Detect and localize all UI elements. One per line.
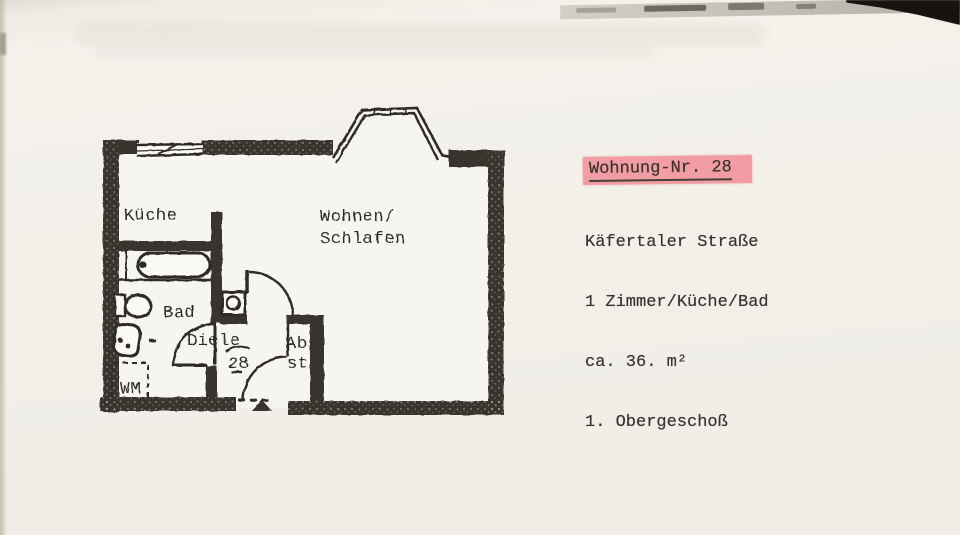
sink-tap-dot (126, 344, 131, 349)
label-bath: Bad (163, 304, 195, 323)
wall-kitchen-hall (211, 212, 222, 323)
info-floor: 1. Obergeschoß (585, 413, 769, 433)
apartment-number-highlight: Wohnung-Nr. 28 (583, 155, 752, 185)
toilet-tank (115, 295, 125, 316)
apartment-details: Käfertaler Straße 1 Zimmer/Küche/Bad ca.… (585, 193, 769, 473)
label-living-1: Wohnen/ (320, 208, 395, 227)
toilet-bowl (125, 295, 151, 317)
apartment-info-block: Wohnung-Nr. 28 Käfertaler Straße 1 Zimme… (583, 156, 769, 473)
label-kitchen: Küche (124, 207, 178, 226)
label-washing-machine: WM (120, 380, 141, 399)
door-handle-mark (149, 340, 156, 341)
label-storage-1: Ab- (286, 335, 318, 354)
label-hallway-number: 28 (228, 355, 249, 374)
floor-plan-drawing: Küche Wohnen/ Schlafen Bad Diele 28 Ab- … (0, 0, 960, 535)
info-street: Käfertaler Straße (585, 233, 769, 253)
apartment-number-title: Wohnung-Nr. 28 (589, 158, 732, 182)
label-storage-2: st. (287, 355, 319, 374)
scanned-floorplan-page: Küche Wohnen/ Schlafen Bad Diele 28 Ab- … (0, 0, 960, 535)
bathtub (138, 253, 210, 277)
wall-kitchen-bath (103, 241, 222, 251)
info-area: ca. 36. m² (585, 353, 769, 373)
label-hallway: Diele (187, 332, 241, 351)
wall-bath-stub (206, 366, 217, 398)
sink-tap-dot (118, 338, 123, 343)
info-rooms: 1 Zimmer/Küche/Bad (585, 293, 769, 313)
bathtub-faucet (140, 262, 147, 269)
label-living-2: Schlafen (320, 230, 406, 249)
